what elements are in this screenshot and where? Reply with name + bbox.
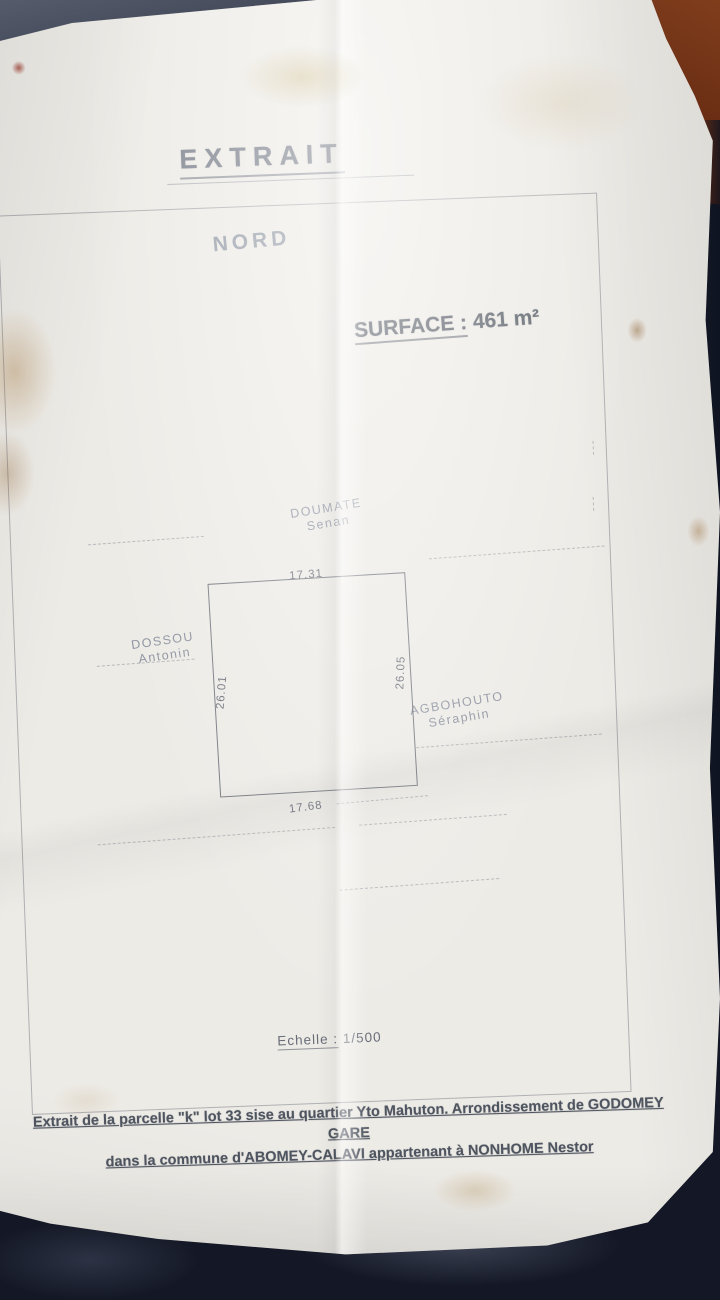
dimension-top: 17.31 (289, 568, 324, 583)
document-content: EXTRAIT NORD SURFACE : 461 m² DOUMATE Se… (0, 0, 720, 1293)
parcel-outline: 17.31 17.68 26.01 26.05 (208, 572, 418, 797)
scale-label: Echelle : (277, 1031, 338, 1050)
dimension-left: 26.01 (215, 675, 230, 710)
surface-value: 461 m² (472, 306, 540, 334)
dimension-right: 26.05 (394, 656, 408, 690)
document-title-text: EXTRAIT (179, 138, 345, 179)
photo-of-document: EXTRAIT NORD SURFACE : 461 m² DOUMATE Se… (0, 0, 720, 1280)
scale-value: 1/500 (343, 1029, 382, 1045)
paper-sheet: EXTRAIT NORD SURFACE : 461 m² DOUMATE Se… (0, 0, 720, 1280)
document-title: EXTRAIT (179, 138, 345, 184)
